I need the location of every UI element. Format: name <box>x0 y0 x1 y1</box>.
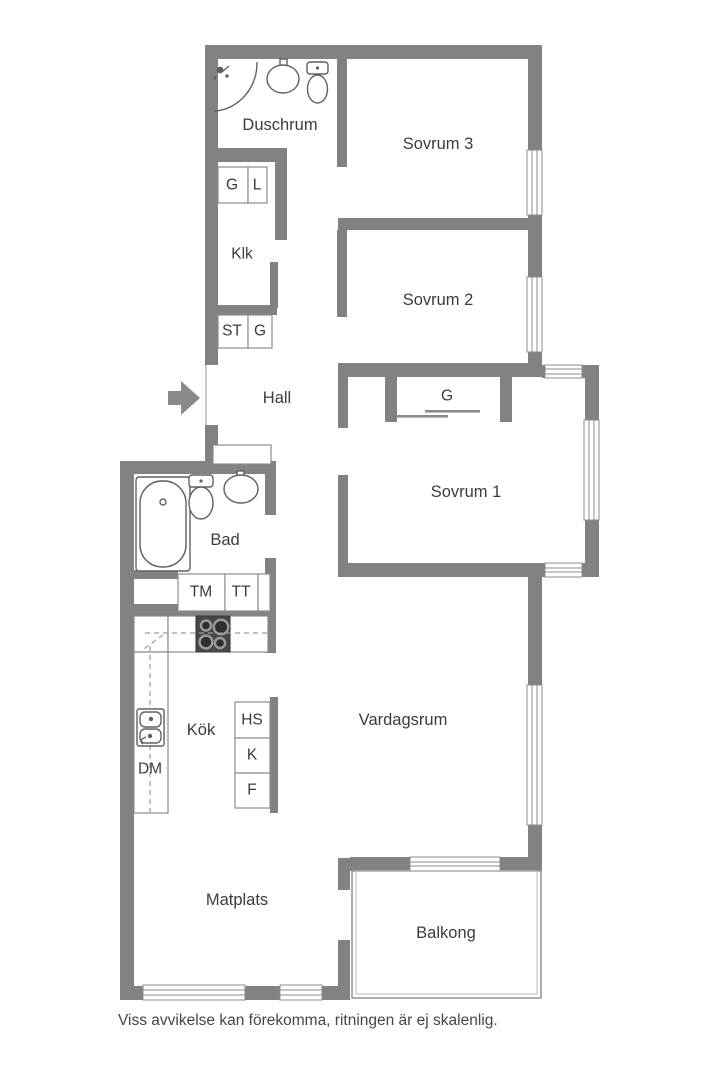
window-balkong <box>410 857 500 871</box>
closet-label-g3: G <box>441 388 453 404</box>
kitchen-sink-icon <box>137 709 164 746</box>
wall <box>205 59 218 365</box>
shaft-box <box>213 445 271 464</box>
appliance-label-f: F <box>247 782 256 798</box>
wall <box>265 461 276 515</box>
wall <box>205 45 542 59</box>
window-bay-bottom <box>545 563 582 577</box>
room-label-sovrum2: Sovrum 2 <box>403 292 474 309</box>
wall <box>338 563 542 577</box>
entrance-arrow-icon <box>168 381 200 415</box>
wall <box>270 697 278 813</box>
closet-label-l: L <box>253 177 262 193</box>
counter-box <box>168 616 196 652</box>
floor-plan-page: Duschrum Sovrum 3 G L Klk Sovrum 2 ST G … <box>0 0 720 1080</box>
room-label-klk: Klk <box>231 246 253 262</box>
sink-icon <box>267 59 299 93</box>
wall <box>338 363 542 377</box>
wall <box>337 230 347 317</box>
window-vardagsrum <box>527 685 542 825</box>
room-label-hall: Hall <box>263 390 291 407</box>
bathtub-icon <box>136 477 190 571</box>
wall <box>270 262 278 308</box>
room-label-sovrum3: Sovrum 3 <box>403 136 474 153</box>
wall <box>337 45 347 167</box>
wall <box>338 377 348 428</box>
cabinet-box <box>258 574 270 611</box>
toilet-icon <box>189 475 213 519</box>
toilet-icon <box>307 62 328 103</box>
closet-label-st: ST <box>222 323 242 339</box>
closet-label-g2: G <box>254 323 266 339</box>
wall <box>338 858 350 890</box>
room-label-balkong: Balkong <box>416 925 476 942</box>
counter-box <box>230 616 268 652</box>
window-sovrum1-bay <box>584 420 599 520</box>
room-label-matplats: Matplats <box>206 892 268 909</box>
window-sovrum3 <box>527 150 542 215</box>
room-label-bad: Bad <box>210 532 239 549</box>
closet-label-g: G <box>226 177 238 193</box>
window-matplats-2 <box>280 985 322 1000</box>
wall <box>212 305 277 315</box>
wall <box>205 148 287 162</box>
window-matplats-1 <box>143 985 245 1000</box>
wall <box>120 474 134 1000</box>
sink-icon <box>224 471 258 503</box>
floor-plan-drawing <box>0 0 720 1080</box>
wall <box>500 377 512 422</box>
room-label-vardagsrum: Vardagsrum <box>359 712 448 729</box>
counter-box <box>134 616 168 652</box>
room-label-sovrum1: Sovrum 1 <box>431 484 502 501</box>
disclaimer-text: Viss avvikelse kan förekomma, ritningen … <box>118 1013 498 1029</box>
wall <box>338 940 350 1000</box>
room-label-kok: Kök <box>187 722 215 739</box>
wall <box>338 475 348 577</box>
window-sovrum2 <box>527 277 542 352</box>
appliance-label-dm: DM <box>138 761 162 777</box>
wall <box>385 377 397 422</box>
appliance-label-tt: TT <box>232 584 251 600</box>
stove-icon <box>196 616 230 652</box>
appliance-label-k: K <box>247 747 257 763</box>
window-bay-top <box>545 365 582 378</box>
sliding-door-icon <box>396 410 480 418</box>
wall <box>275 148 287 240</box>
shower-icon <box>214 62 258 111</box>
room-label-duschrum: Duschrum <box>242 117 317 134</box>
appliance-label-hs: HS <box>241 712 263 728</box>
wall <box>338 218 542 230</box>
appliance-label-tm: TM <box>190 584 212 600</box>
